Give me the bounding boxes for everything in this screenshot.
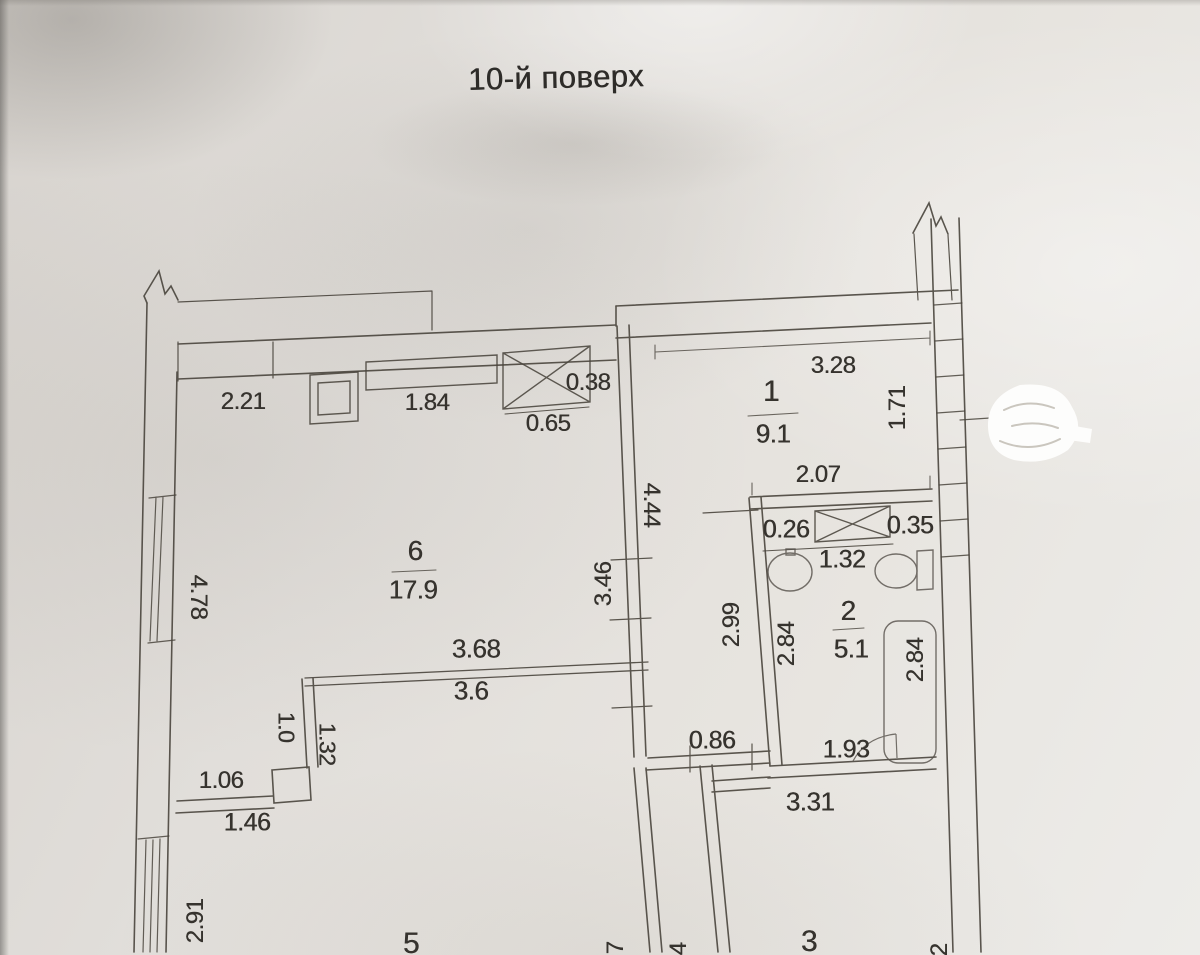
room6-number: 6 xyxy=(407,535,422,567)
dim-room1-window: 1.71 xyxy=(884,386,912,431)
vent-duct-square xyxy=(310,372,358,424)
room1-label-underline xyxy=(748,413,798,416)
room6-area: 17.9 xyxy=(389,575,438,606)
dim-niche-width: 1.84 xyxy=(405,389,450,417)
dim-vent-width: 0.65 xyxy=(526,410,571,438)
dim-room1-width-top: 3.28 xyxy=(811,352,856,380)
wall-break-symbol-left xyxy=(144,271,178,303)
dim-room6-width-floor: 3.6 xyxy=(454,676,489,707)
dim-mid-wall-lower: 3.46 xyxy=(590,562,618,607)
dim-left-wall-window: 4.78 xyxy=(184,575,212,620)
correction-blob xyxy=(988,384,1092,461)
dim-closet-depth: 1.0 xyxy=(273,712,300,742)
room1-area: 9.1 xyxy=(756,419,791,450)
dim-bath-height-left: 2.84 xyxy=(773,622,801,667)
dim-hall-door: 0.86 xyxy=(689,727,736,756)
dim-bath-vent-width: 1.32 xyxy=(819,546,866,575)
dim-kitchen-wall-top: 2.21 xyxy=(221,388,266,416)
floor-plan-drawing xyxy=(0,0,1200,955)
plan-title: 10-й поверх xyxy=(468,58,645,98)
dim-room5-window: 2.91 xyxy=(182,899,210,944)
room6-label-underline xyxy=(392,570,436,572)
dim-closet-top: 1.06 xyxy=(199,767,244,795)
dim-closet-bottom: 1.46 xyxy=(224,809,271,838)
bath-vent-crossed xyxy=(815,506,890,542)
dim-hall-height: 2.99 xyxy=(718,603,746,648)
dim-cut-left: 7 xyxy=(602,942,630,955)
dim-mid-wall-upper: 4.44 xyxy=(637,483,665,528)
toilet-icon xyxy=(875,554,917,588)
room2-number: 2 xyxy=(840,595,855,627)
dim-vent-depth: 0.38 xyxy=(566,369,611,397)
room1-number: 1 xyxy=(763,375,779,409)
dim-room1-width-bottom: 2.07 xyxy=(796,461,841,489)
window-left-lower xyxy=(138,836,169,952)
sink-icon xyxy=(768,553,812,591)
room3-number: 3 xyxy=(801,925,817,955)
dim-cut-mid: 4 xyxy=(665,943,693,955)
room5-number: 5 xyxy=(403,927,419,955)
floor-plan-photo: 10-й поверх 2.21 1.84 0.38 0.65 3.28 1 9… xyxy=(0,0,1200,955)
walls-layer xyxy=(134,203,981,952)
kitchen-niche xyxy=(366,355,497,390)
room2-area: 5.1 xyxy=(834,634,869,665)
dim-bath-width-bottom: 1.93 xyxy=(823,736,870,765)
dim-cut-right: 2 xyxy=(926,944,954,955)
dim-bath-vent-right: 0.35 xyxy=(887,512,934,541)
dim-hall-width: 3.31 xyxy=(786,787,835,818)
windows-layer xyxy=(138,303,990,952)
dim-closet-width: 1.32 xyxy=(314,723,341,766)
dim-room6-width-inner: 3.68 xyxy=(452,634,501,665)
dim-bath-height-right: 2.84 xyxy=(902,638,930,683)
room2-label-underline xyxy=(833,628,864,630)
dim-bath-vent-left: 0.26 xyxy=(763,516,810,545)
toilet-tank-icon xyxy=(917,550,933,590)
